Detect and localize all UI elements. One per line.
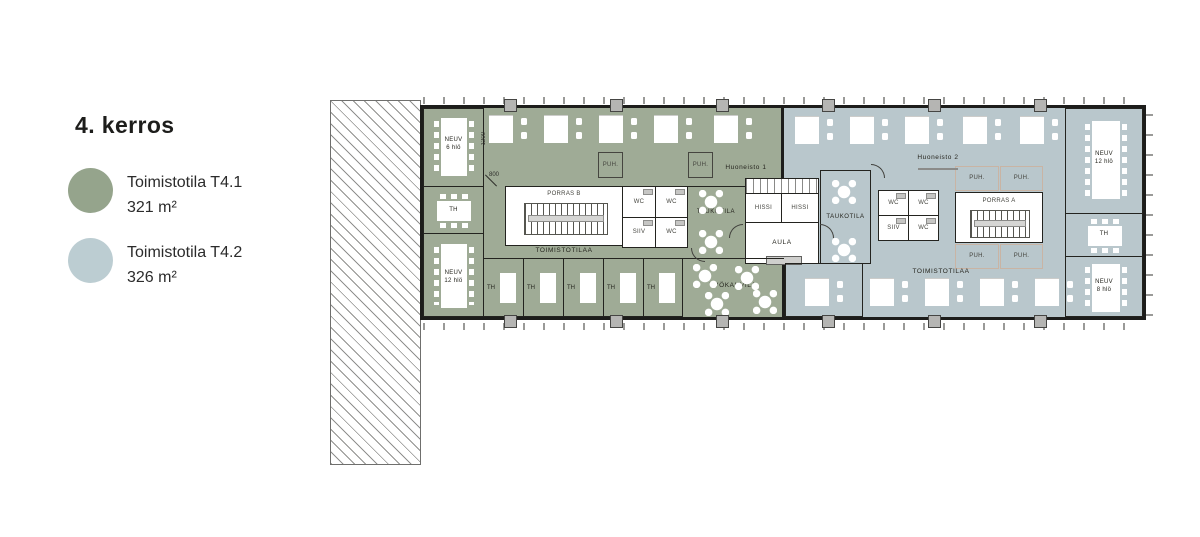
chair: [1020, 119, 1026, 126]
facade-column: [504, 99, 517, 112]
chair: [659, 291, 665, 298]
desk-cluster: [870, 278, 908, 306]
desk-divider: [805, 278, 829, 279]
chair: [902, 281, 908, 288]
meeting-room-neuv12-right: NEUV 12 hlö: [1065, 108, 1143, 214]
chair: [795, 133, 801, 140]
desk-cluster: [1035, 278, 1073, 306]
round-table: [735, 266, 759, 290]
legend-label-t41: Toimistotila T4.1: [127, 171, 242, 196]
room-label-porras-b: PORRAS B: [506, 191, 622, 199]
facade-column: [610, 99, 623, 112]
chair: [995, 133, 1001, 140]
dimension-1200: 1200: [481, 132, 487, 145]
chair: [995, 119, 1001, 126]
desk-divider: [1020, 116, 1044, 117]
meeting-room-neuv8: NEUV 8 hlö: [1065, 256, 1143, 317]
desk-divider: [795, 116, 819, 117]
chair: [540, 277, 546, 284]
chair: [850, 119, 856, 126]
legend-swatch-t41: [68, 168, 113, 213]
desk-duo: [540, 273, 566, 303]
cleaning-room-siiv: SIIV: [878, 215, 909, 241]
chair: [620, 277, 626, 284]
chair: [1035, 281, 1041, 288]
stair-rail: [528, 215, 604, 222]
chair: [905, 119, 911, 126]
chair: [925, 295, 931, 302]
chair: [599, 132, 605, 139]
desk-duo: [620, 273, 646, 303]
room-label-th: TH: [424, 207, 483, 215]
chair: [654, 132, 660, 139]
chair: [521, 132, 527, 139]
chair: [631, 132, 637, 139]
chair: [805, 281, 811, 288]
staircase-porras-b: PORRAS B: [505, 186, 623, 246]
chair: [957, 281, 963, 288]
wc-room: WC: [878, 190, 909, 216]
desk-cluster: [850, 116, 888, 144]
chair: [544, 132, 550, 139]
facade-column: [610, 315, 623, 328]
phone-booth: PUH.: [598, 152, 623, 178]
facade-column: [716, 315, 729, 328]
chair: [1012, 295, 1018, 302]
chair: [963, 133, 969, 140]
room-label-puh: PUH.: [599, 162, 622, 170]
elevator-hissi-2: HISSI: [781, 193, 819, 223]
chair: [1012, 281, 1018, 288]
dimension-800: 800: [489, 172, 499, 178]
chair: [746, 132, 752, 139]
chair: [620, 291, 626, 298]
chair: [659, 277, 665, 284]
meeting-room-neuv12-left: NEUV 12 hlö: [423, 233, 484, 317]
round-table: [832, 180, 856, 204]
chair: [1067, 295, 1073, 302]
desk-divider: [925, 278, 949, 279]
chair: [963, 119, 969, 126]
legend-swatch-t42: [68, 238, 113, 283]
chair: [870, 281, 876, 288]
stair-rail: [974, 220, 1026, 227]
chair: [746, 118, 752, 125]
desk-divider: [980, 278, 1004, 279]
legend-item-t42: Toimistotila T4.2 326 m²: [127, 241, 242, 291]
chair: [902, 295, 908, 302]
desk-divider: [870, 278, 894, 279]
chair: [489, 118, 495, 125]
chair: [837, 281, 843, 288]
work-room-th-left: TH: [423, 186, 484, 234]
desk-divider: [714, 115, 738, 116]
unit-label-huoneisto1: Huoneisto 1: [708, 164, 784, 171]
desk-cluster: [795, 116, 833, 144]
room-label-th: TH: [1066, 231, 1142, 239]
desk-cluster: [805, 278, 843, 306]
desk-cluster: [1020, 116, 1058, 144]
round-table: [753, 290, 777, 314]
chair: [980, 295, 986, 302]
wc-room: WC: [908, 190, 939, 216]
desk-cluster: [905, 116, 943, 144]
facade-column: [928, 99, 941, 112]
chair: [500, 277, 506, 284]
room-label-taukotila-2: TAUKOTILA: [816, 214, 875, 220]
unit-label-huoneisto2: Huoneisto 2: [888, 154, 988, 161]
chair: [837, 295, 843, 302]
chair: [540, 291, 546, 298]
chair: [1067, 281, 1073, 288]
chair: [957, 295, 963, 302]
window-ticks-right: [1146, 112, 1153, 316]
wc-room: WC: [622, 186, 656, 218]
room-label-neuv6: NEUV 6 hlö: [424, 137, 483, 153]
area-label-toimistotilaa-1: TOIMISTOTILAA: [505, 247, 623, 254]
chair: [576, 132, 582, 139]
desk-divider: [544, 115, 568, 116]
chair: [599, 118, 605, 125]
area-label-toimistotilaa-2: TOIMISTOTILAA: [881, 268, 1001, 275]
room-label-porras-a: PORRAS A: [956, 198, 1042, 206]
chair: [805, 295, 811, 302]
desk-duo: [500, 273, 526, 303]
room-label-aula: AULA: [746, 239, 818, 247]
huoneisto2-underline: [918, 168, 958, 170]
round-table: [832, 238, 856, 262]
desk-divider: [850, 116, 874, 117]
chair: [500, 291, 506, 298]
facade-column: [1034, 99, 1047, 112]
phone-booth: PUH.: [1000, 244, 1043, 269]
chair: [631, 118, 637, 125]
desk-duo: [580, 273, 606, 303]
chair: [686, 118, 692, 125]
chair: [1020, 133, 1026, 140]
desk-divider: [599, 115, 623, 116]
legend-area-t42: 326 m²: [127, 266, 242, 291]
chair: [882, 119, 888, 126]
desk-cluster: [980, 278, 1018, 306]
facade-column: [1034, 315, 1047, 328]
wc-room: WC: [655, 217, 688, 248]
chair: [580, 291, 586, 298]
work-room-th-right: TH: [1065, 213, 1143, 257]
desk-cluster: [489, 115, 527, 143]
staircase-porras-a: PORRAS A: [955, 192, 1043, 243]
meeting-room-neuv6: NEUV 6 hlö: [423, 108, 484, 187]
chair: [850, 133, 856, 140]
chair: [580, 277, 586, 284]
chair: [544, 118, 550, 125]
chair: [937, 119, 943, 126]
phone-booth: PUH.: [1000, 166, 1043, 191]
elevator-vestibule: [745, 178, 819, 194]
chair: [1035, 295, 1041, 302]
facade-column: [504, 315, 517, 328]
chair: [489, 132, 495, 139]
facade-column: [716, 99, 729, 112]
desk-cluster: [654, 115, 692, 143]
building-outline: NEUV 6 hlö TH NEUV 12 hlö 1200 800 PUH. …: [420, 105, 1146, 320]
desk-cluster: [599, 115, 637, 143]
desk-cluster: [544, 115, 582, 143]
desk-cluster: [963, 116, 1001, 144]
chair: [1052, 119, 1058, 126]
legend-area-t41: 321 m²: [127, 196, 242, 221]
desk-divider: [963, 116, 987, 117]
desk-divider: [489, 115, 513, 116]
facade-column: [928, 315, 941, 328]
round-table: [699, 190, 723, 214]
chair: [925, 281, 931, 288]
facade-column: [822, 99, 835, 112]
hatched-terrace-area: [330, 100, 421, 465]
desk-divider: [1035, 278, 1059, 279]
legend-label-t42: Toimistotila T4.2: [127, 241, 242, 266]
chair: [980, 281, 986, 288]
phone-booth: PUH.: [955, 166, 999, 191]
round-table: [693, 264, 717, 288]
chair: [521, 118, 527, 125]
legend-item-t41: Toimistotila T4.1 321 m²: [127, 171, 242, 221]
chair: [827, 133, 833, 140]
floor-plan-canvas: 4. kerros Toimistotila T4.1 321 m² Toimi…: [0, 0, 1200, 537]
chair: [1052, 133, 1058, 140]
chair: [714, 132, 720, 139]
chair: [882, 133, 888, 140]
chair: [576, 118, 582, 125]
chair: [937, 133, 943, 140]
chair: [827, 119, 833, 126]
room-label-neuv12: NEUV 12 hlö: [424, 270, 483, 286]
chair: [686, 132, 692, 139]
page-title: 4. kerros: [75, 112, 175, 139]
cleaning-room-siiv: SIIV: [622, 217, 656, 248]
room-label-neuv12: NEUV 12 hlö: [1066, 151, 1142, 167]
chair: [870, 295, 876, 302]
desk-divider: [654, 115, 678, 116]
chair: [654, 118, 660, 125]
desk-cluster: [714, 115, 752, 143]
desk-cluster: [925, 278, 963, 306]
chair: [905, 133, 911, 140]
round-table: [705, 292, 729, 316]
wc-room: WC: [908, 215, 939, 241]
phone-booth: PUH.: [955, 244, 999, 269]
elevator-hissi-1: HISSI: [745, 193, 782, 223]
desk-duo: [659, 273, 685, 303]
desk-divider: [905, 116, 929, 117]
chair: [795, 119, 801, 126]
room-label-neuv8: NEUV 8 hlö: [1066, 279, 1142, 295]
chair: [714, 118, 720, 125]
facade-column: [822, 315, 835, 328]
